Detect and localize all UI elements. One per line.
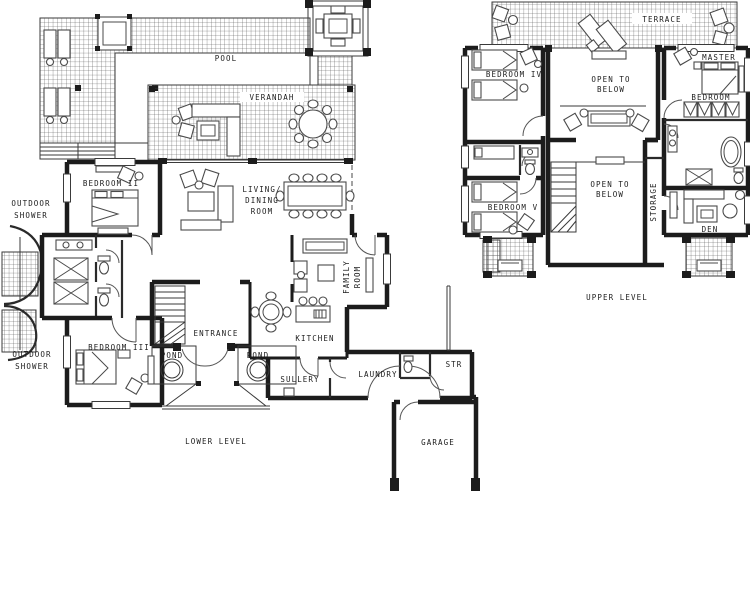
label-outdoor-shower-lower-1: OUTDOOR — [12, 350, 51, 359]
alcove-bed-bath — [474, 146, 538, 175]
caption-upper-level: UPPER LEVEL — [586, 293, 648, 302]
den-set — [670, 190, 745, 223]
label-laundry: LAUNDRY — [358, 370, 397, 379]
caption-lower-level: LOWER LEVEL — [185, 437, 247, 446]
bedroom-ii-bed — [92, 166, 143, 234]
label-sullery: SULLERY — [280, 375, 319, 384]
label-living-3: ROOM — [251, 207, 273, 216]
label-master-2: BEDROOM — [691, 93, 730, 102]
label-storage: STORAGE — [649, 182, 658, 221]
gazebo — [305, 0, 371, 85]
balcony-right — [682, 236, 735, 278]
label-open-below-top-2: BELOW — [597, 85, 625, 94]
label-bedroom-ii: BEDROOM II — [83, 179, 139, 188]
label-den: DEN — [702, 225, 719, 234]
label-bedroom-iii: BEDROOM III — [88, 343, 150, 352]
balcony-left — [483, 236, 536, 278]
label-living-2: DINING — [245, 196, 279, 205]
pool-cabana — [95, 14, 132, 51]
floor-plan-sheet: POOL VERANDAH BEDROOM II LIVING/ DINING … — [0, 0, 750, 600]
stairs-lower — [155, 286, 185, 344]
label-pond-left: POND — [161, 351, 183, 360]
label-outdoor-shower-lower-2: SHOWER — [15, 362, 49, 371]
void-top — [548, 51, 658, 140]
label-outdoor-shower-upper-2: SHOWER — [14, 211, 48, 220]
label-family-2: ROOM — [353, 266, 362, 288]
landing-sofa-set — [564, 109, 649, 132]
deck-steps — [40, 143, 115, 159]
label-open-below-bot-1: OPEN TO — [590, 180, 629, 189]
floor-plan-drawing: POOL VERANDAH BEDROOM II LIVING/ DINING … — [0, 0, 750, 600]
label-pool: POOL — [215, 54, 237, 63]
label-open-below-top-1: OPEN TO — [591, 75, 630, 84]
bathroom-block — [54, 240, 110, 306]
gazebo-table — [316, 6, 360, 46]
lower-level-plan — [2, 0, 500, 491]
label-master-1: MASTER — [702, 53, 736, 62]
stairs-upper — [551, 162, 576, 232]
dining-table — [276, 174, 354, 218]
verandah-round-table — [289, 100, 337, 148]
bedroom-iii-bed — [76, 350, 154, 394]
outdoor-showers — [2, 226, 42, 360]
label-pond-right: POND — [247, 351, 269, 360]
label-garage: GARAGE — [421, 438, 455, 447]
void-bottom — [576, 157, 645, 164]
label-open-below-bot-2: BELOW — [596, 190, 624, 199]
label-str: STR — [446, 360, 463, 369]
label-bedroom-iv: BEDROOM IV — [486, 70, 542, 79]
master-closets — [684, 102, 739, 117]
label-terrace: TERRACE — [642, 15, 681, 24]
label-family-1: FAMILY — [342, 260, 351, 294]
label-verandah: VERANDAH — [250, 93, 295, 102]
label-kitchen: KITCHEN — [295, 334, 334, 343]
upper-level-plan — [462, 2, 750, 278]
master-bath — [668, 126, 743, 185]
label-living-1: LIVING/ — [242, 185, 281, 194]
label-outdoor-shower-upper-1: OUTDOOR — [11, 199, 50, 208]
label-entrance: ENTRANCE — [194, 329, 239, 338]
living-room-set — [180, 169, 233, 230]
label-bedroom-v: BEDROOM V — [488, 203, 539, 212]
